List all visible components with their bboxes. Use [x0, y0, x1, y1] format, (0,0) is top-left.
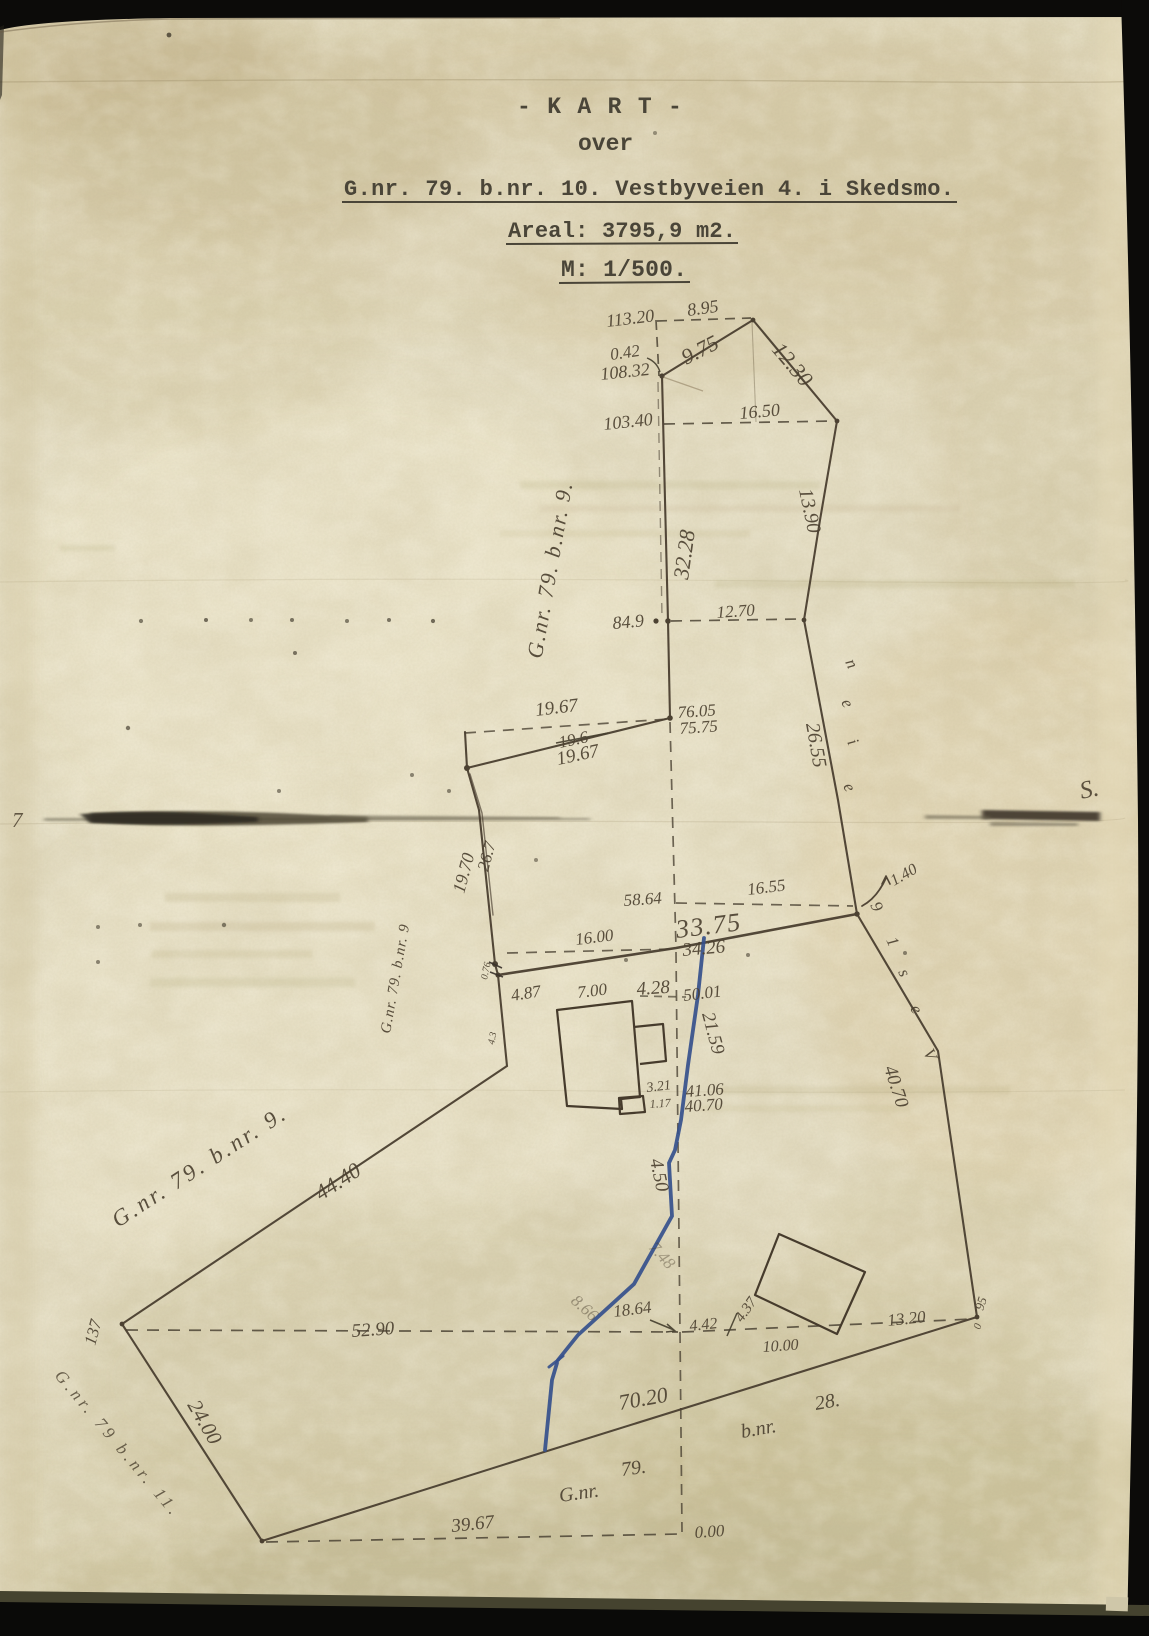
svg-text:79.: 79.	[620, 1456, 648, 1481]
svg-text:3.21: 3.21	[645, 1078, 672, 1096]
svg-text:10.00: 10.00	[762, 1337, 799, 1356]
svg-text:1.17: 1.17	[649, 1095, 672, 1111]
svg-text:4.42: 4.42	[689, 1315, 719, 1335]
svg-text:7: 7	[12, 808, 24, 832]
svg-text:Areal: 3795,9 m2.: Areal: 3795,9 m2.	[508, 219, 736, 244]
svg-text:40.70: 40.70	[684, 1094, 724, 1116]
svg-text:4.28: 4.28	[636, 977, 671, 1000]
svg-text:28.: 28.	[813, 1389, 841, 1415]
svg-text:- K A R T -: - K A R T -	[517, 94, 683, 120]
svg-text:13.20: 13.20	[886, 1307, 927, 1330]
svg-text:12.70: 12.70	[716, 600, 756, 622]
svg-text:M: 1/500.: M: 1/500.	[561, 257, 687, 283]
svg-text:34.26: 34.26	[681, 936, 727, 961]
svg-text:16.50: 16.50	[739, 400, 781, 423]
svg-text:75.75: 75.75	[679, 716, 718, 738]
svg-text:G.nr. 79. b.nr. 10. Vestbyveie: G.nr. 79. b.nr. 10. Vestbyveien 4. i Ske…	[344, 177, 954, 202]
svg-text:7.00: 7.00	[576, 979, 608, 1002]
svg-text:58.64: 58.64	[623, 888, 663, 910]
svg-text:0.00: 0.00	[694, 1521, 726, 1542]
svg-text:84.9: 84.9	[612, 610, 645, 633]
svg-text:over: over	[578, 131, 633, 157]
svg-text:52.90: 52.90	[351, 1318, 396, 1342]
